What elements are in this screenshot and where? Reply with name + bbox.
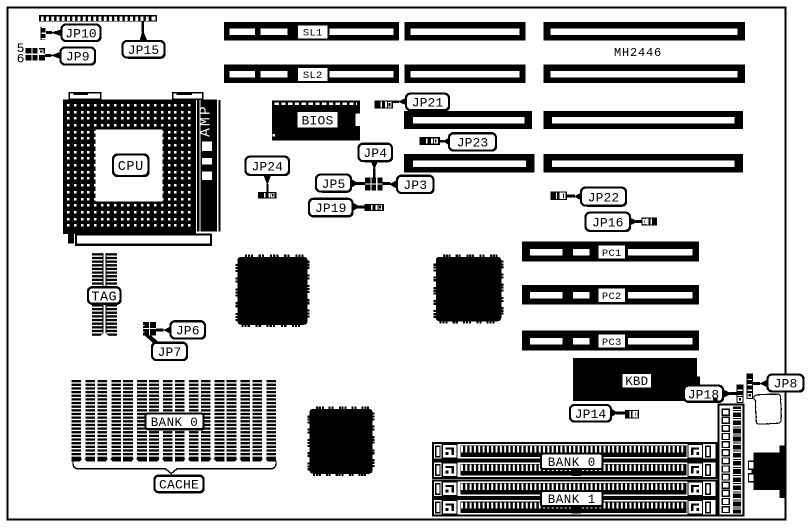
svg-text:JP6: JP6 [176, 324, 200, 339]
svg-text:JP22: JP22 [588, 190, 620, 205]
svg-text:BIOS: BIOS [301, 114, 333, 129]
svg-text:JP15: JP15 [128, 43, 160, 58]
svg-text:MH2446: MH2446 [614, 46, 662, 60]
svg-text:CACHE: CACHE [159, 478, 199, 493]
svg-text:PC2: PC2 [602, 291, 622, 303]
svg-text:JP23: JP23 [457, 136, 489, 151]
svg-text:PC1: PC1 [602, 248, 622, 260]
svg-text:BANK 1: BANK 1 [548, 493, 596, 507]
svg-text:JP21: JP21 [412, 96, 444, 111]
svg-text:SL1: SL1 [303, 28, 323, 40]
svg-text:JP16: JP16 [592, 215, 624, 230]
svg-text:JP24: JP24 [251, 159, 283, 174]
svg-text:KBD: KBD [625, 375, 648, 389]
svg-text:SL2: SL2 [303, 70, 323, 82]
svg-text:6: 6 [17, 52, 25, 67]
svg-text:CPU: CPU [118, 160, 144, 175]
svg-text:JP19: JP19 [315, 201, 347, 216]
svg-text:JP7: JP7 [158, 345, 182, 360]
svg-text:TAG: TAG [91, 290, 117, 305]
svg-text:BANK 0: BANK 0 [548, 456, 596, 470]
svg-text:JP5: JP5 [322, 177, 346, 192]
svg-text:PC3: PC3 [602, 337, 622, 349]
svg-text:JP4: JP4 [363, 146, 387, 161]
svg-text:JP9: JP9 [66, 50, 90, 65]
svg-text:JP8: JP8 [774, 377, 798, 392]
svg-text:AMP: AMP [198, 104, 214, 137]
svg-text:JP3: JP3 [403, 178, 427, 193]
svg-text:JP14: JP14 [575, 407, 607, 422]
svg-text:JP10: JP10 [65, 26, 97, 41]
svg-text:BANK 0: BANK 0 [151, 416, 198, 430]
